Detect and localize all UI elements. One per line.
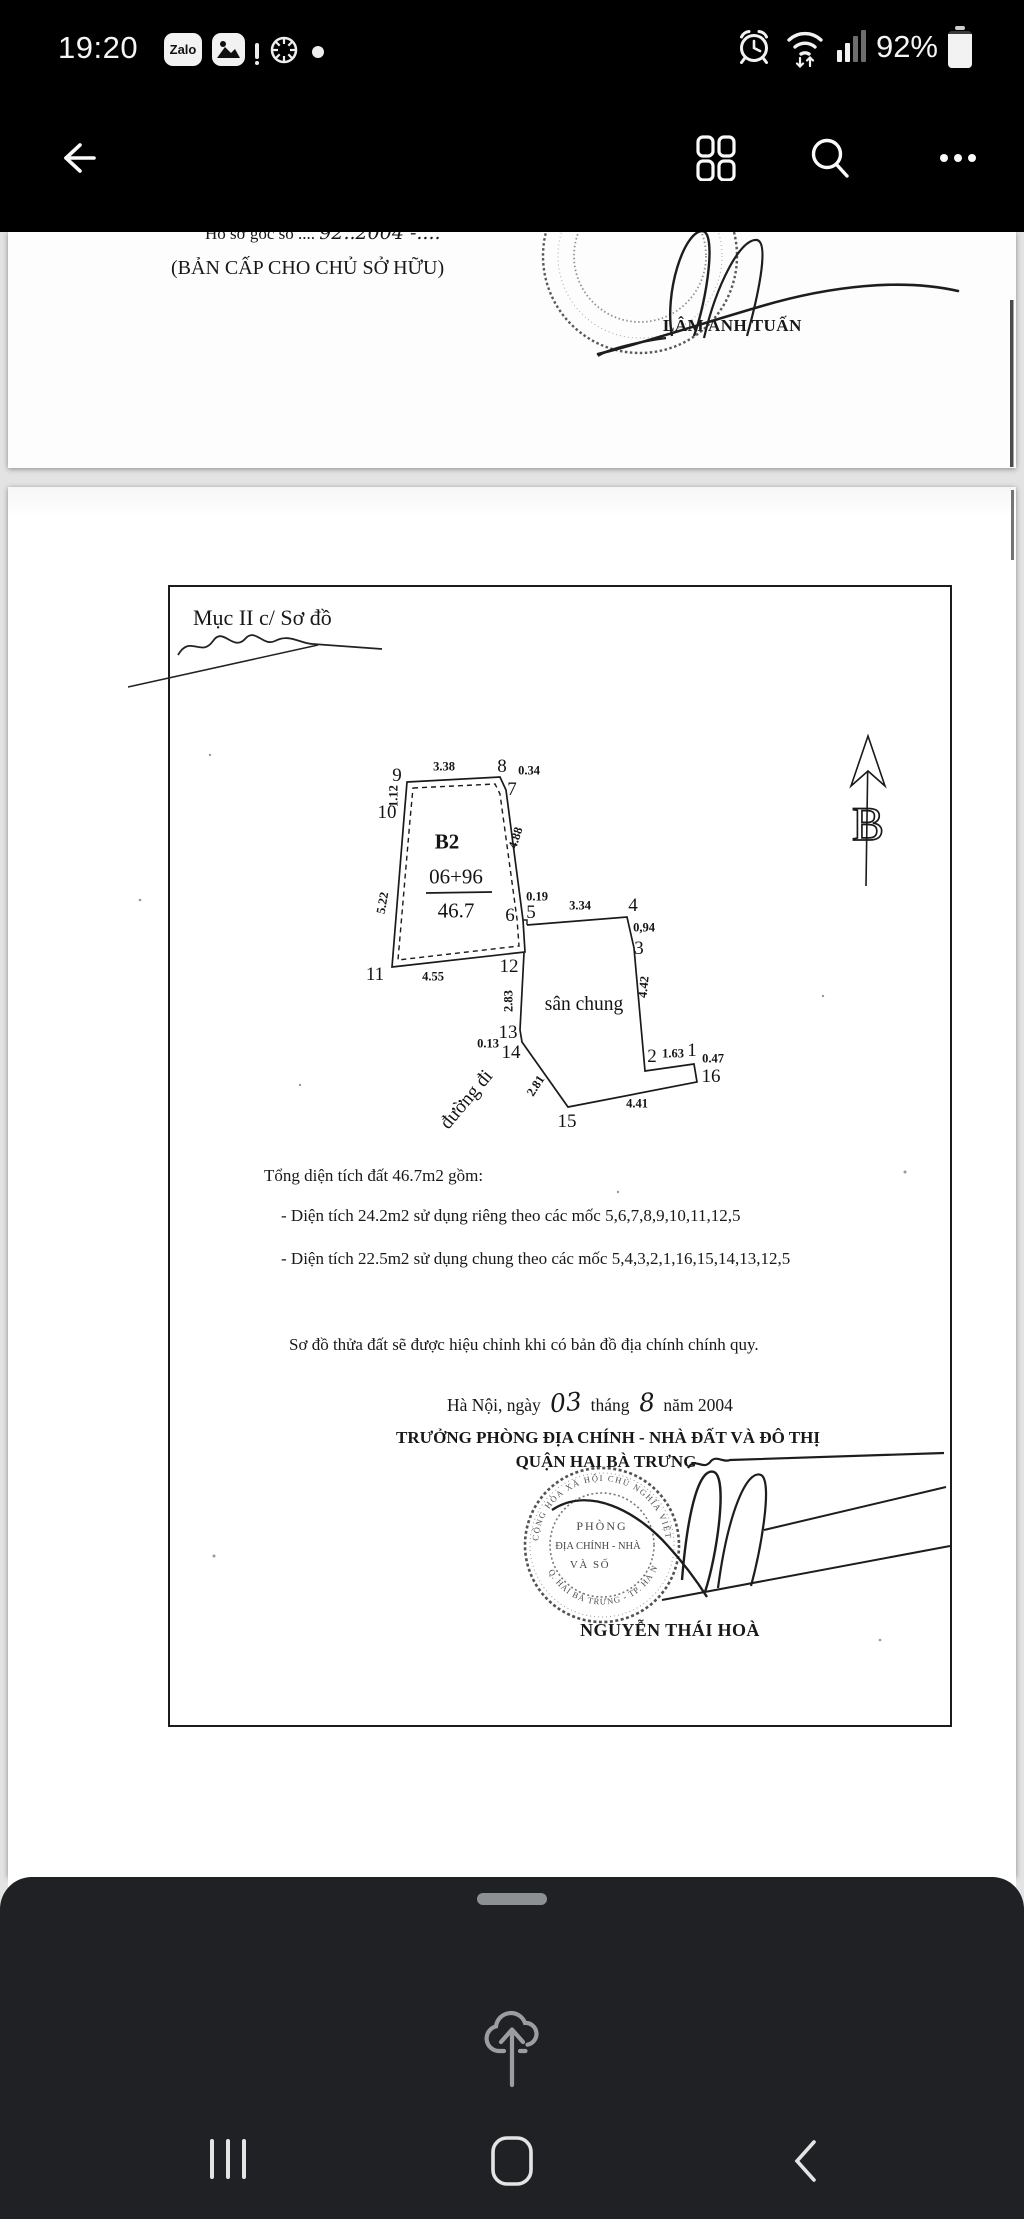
owner-copy-line: (BẢN CẤP CHO CHỦ SỞ HỮU) <box>171 257 444 280</box>
date-month-handwritten: 8 <box>637 1387 655 1417</box>
back-button[interactable] <box>52 134 100 182</box>
total-area-line: Tổng diện tích đất 46.7m2 gồm: <box>264 1166 483 1186</box>
wifi-icon <box>783 26 827 68</box>
shared-area-line: - Diện tích 22.5m2 sử dụng chung theo cá… <box>281 1249 790 1269</box>
section-heading: Mục II c/ Sơ đồ <box>193 605 332 631</box>
adjustment-note-line: Sơ đồ thửa đất sẽ được hiệu chỉnh khi có… <box>289 1335 759 1355</box>
zalo-notification-icon: Zalo <box>164 33 202 66</box>
chevron-left-icon <box>788 2136 822 2186</box>
aperture-icon <box>267 33 301 67</box>
app-header: 19:20 Zalo <box>0 0 1024 232</box>
office-title-line1: TRƯỞNG PHÒNG ĐỊA CHÍNH - NHÀ ĐẤT VÀ ĐÔ T… <box>396 1428 820 1448</box>
recents-icon <box>204 2139 252 2184</box>
cloud-upload-button[interactable] <box>478 2005 546 2093</box>
home-icon <box>489 2134 535 2188</box>
date-prefix: Hà Nội, ngày <box>447 1395 541 1416</box>
android-nav-bar <box>0 2121 1024 2201</box>
bottom-sheet <box>0 1877 1024 2219</box>
nav-back-button[interactable] <box>760 2121 850 2201</box>
file-number-label: Hồ sơ gốc số .... <box>205 232 315 243</box>
file-number-line: Hồ sơ gốc số .... 92..2004 -.... <box>205 232 441 244</box>
recents-button[interactable] <box>183 2121 273 2201</box>
page-border-frame <box>168 585 952 1727</box>
ellipsis-icon <box>934 135 982 181</box>
date-line: Hà Nội, ngày 03 tháng 8 năm 2004 <box>447 1388 733 1417</box>
signal-strength-icon <box>837 32 866 62</box>
private-area-line: - Diện tích 24.2m2 sử dụng riêng theo cá… <box>281 1206 740 1226</box>
battery-percent-text: 92% <box>876 29 938 65</box>
clock-text: 19:20 <box>58 30 138 66</box>
pages-grid-button[interactable] <box>692 134 740 182</box>
zalo-label: Zalo <box>170 42 197 57</box>
document-page-1[interactable]: Hồ sơ gốc số .... 92..2004 -.... (BẢN CẤ… <box>8 232 1016 468</box>
date-middle: tháng <box>591 1395 630 1416</box>
date-day-handwritten: 03 <box>549 1387 583 1419</box>
i-glyph-icon <box>252 35 262 65</box>
alarm-icon <box>735 27 773 67</box>
date-suffix: năm 2004 <box>663 1395 733 1416</box>
grid-icon <box>694 135 738 181</box>
signer-name-page1: LÂM ANH TUẤN <box>663 316 802 336</box>
search-icon <box>807 135 853 181</box>
search-button[interactable] <box>806 134 854 182</box>
battery-icon <box>948 26 972 68</box>
status-icons: 92% <box>735 26 972 68</box>
back-arrow-icon <box>53 135 99 181</box>
gallery-notification-icon <box>212 33 245 66</box>
phone-screen: 19:20 Zalo <box>0 0 1024 2219</box>
app-notification-icon <box>252 33 301 67</box>
notification-dot-icon <box>312 46 324 58</box>
signer-name-page2: NGUYỄN THÁI HOÀ <box>530 1620 810 1641</box>
home-button[interactable] <box>467 2121 557 2201</box>
file-number-handwritten: 92..2004 -.... <box>319 232 440 244</box>
office-title-line2: QUẬN HAI BÀ TRƯNG <box>396 1452 816 1472</box>
status-bar: 19:20 Zalo <box>0 0 1024 70</box>
photo-icon <box>212 33 245 66</box>
more-options-button[interactable] <box>934 134 982 182</box>
sheet-drag-handle[interactable] <box>477 1893 547 1905</box>
cloud-upload-icon <box>479 2005 545 2093</box>
